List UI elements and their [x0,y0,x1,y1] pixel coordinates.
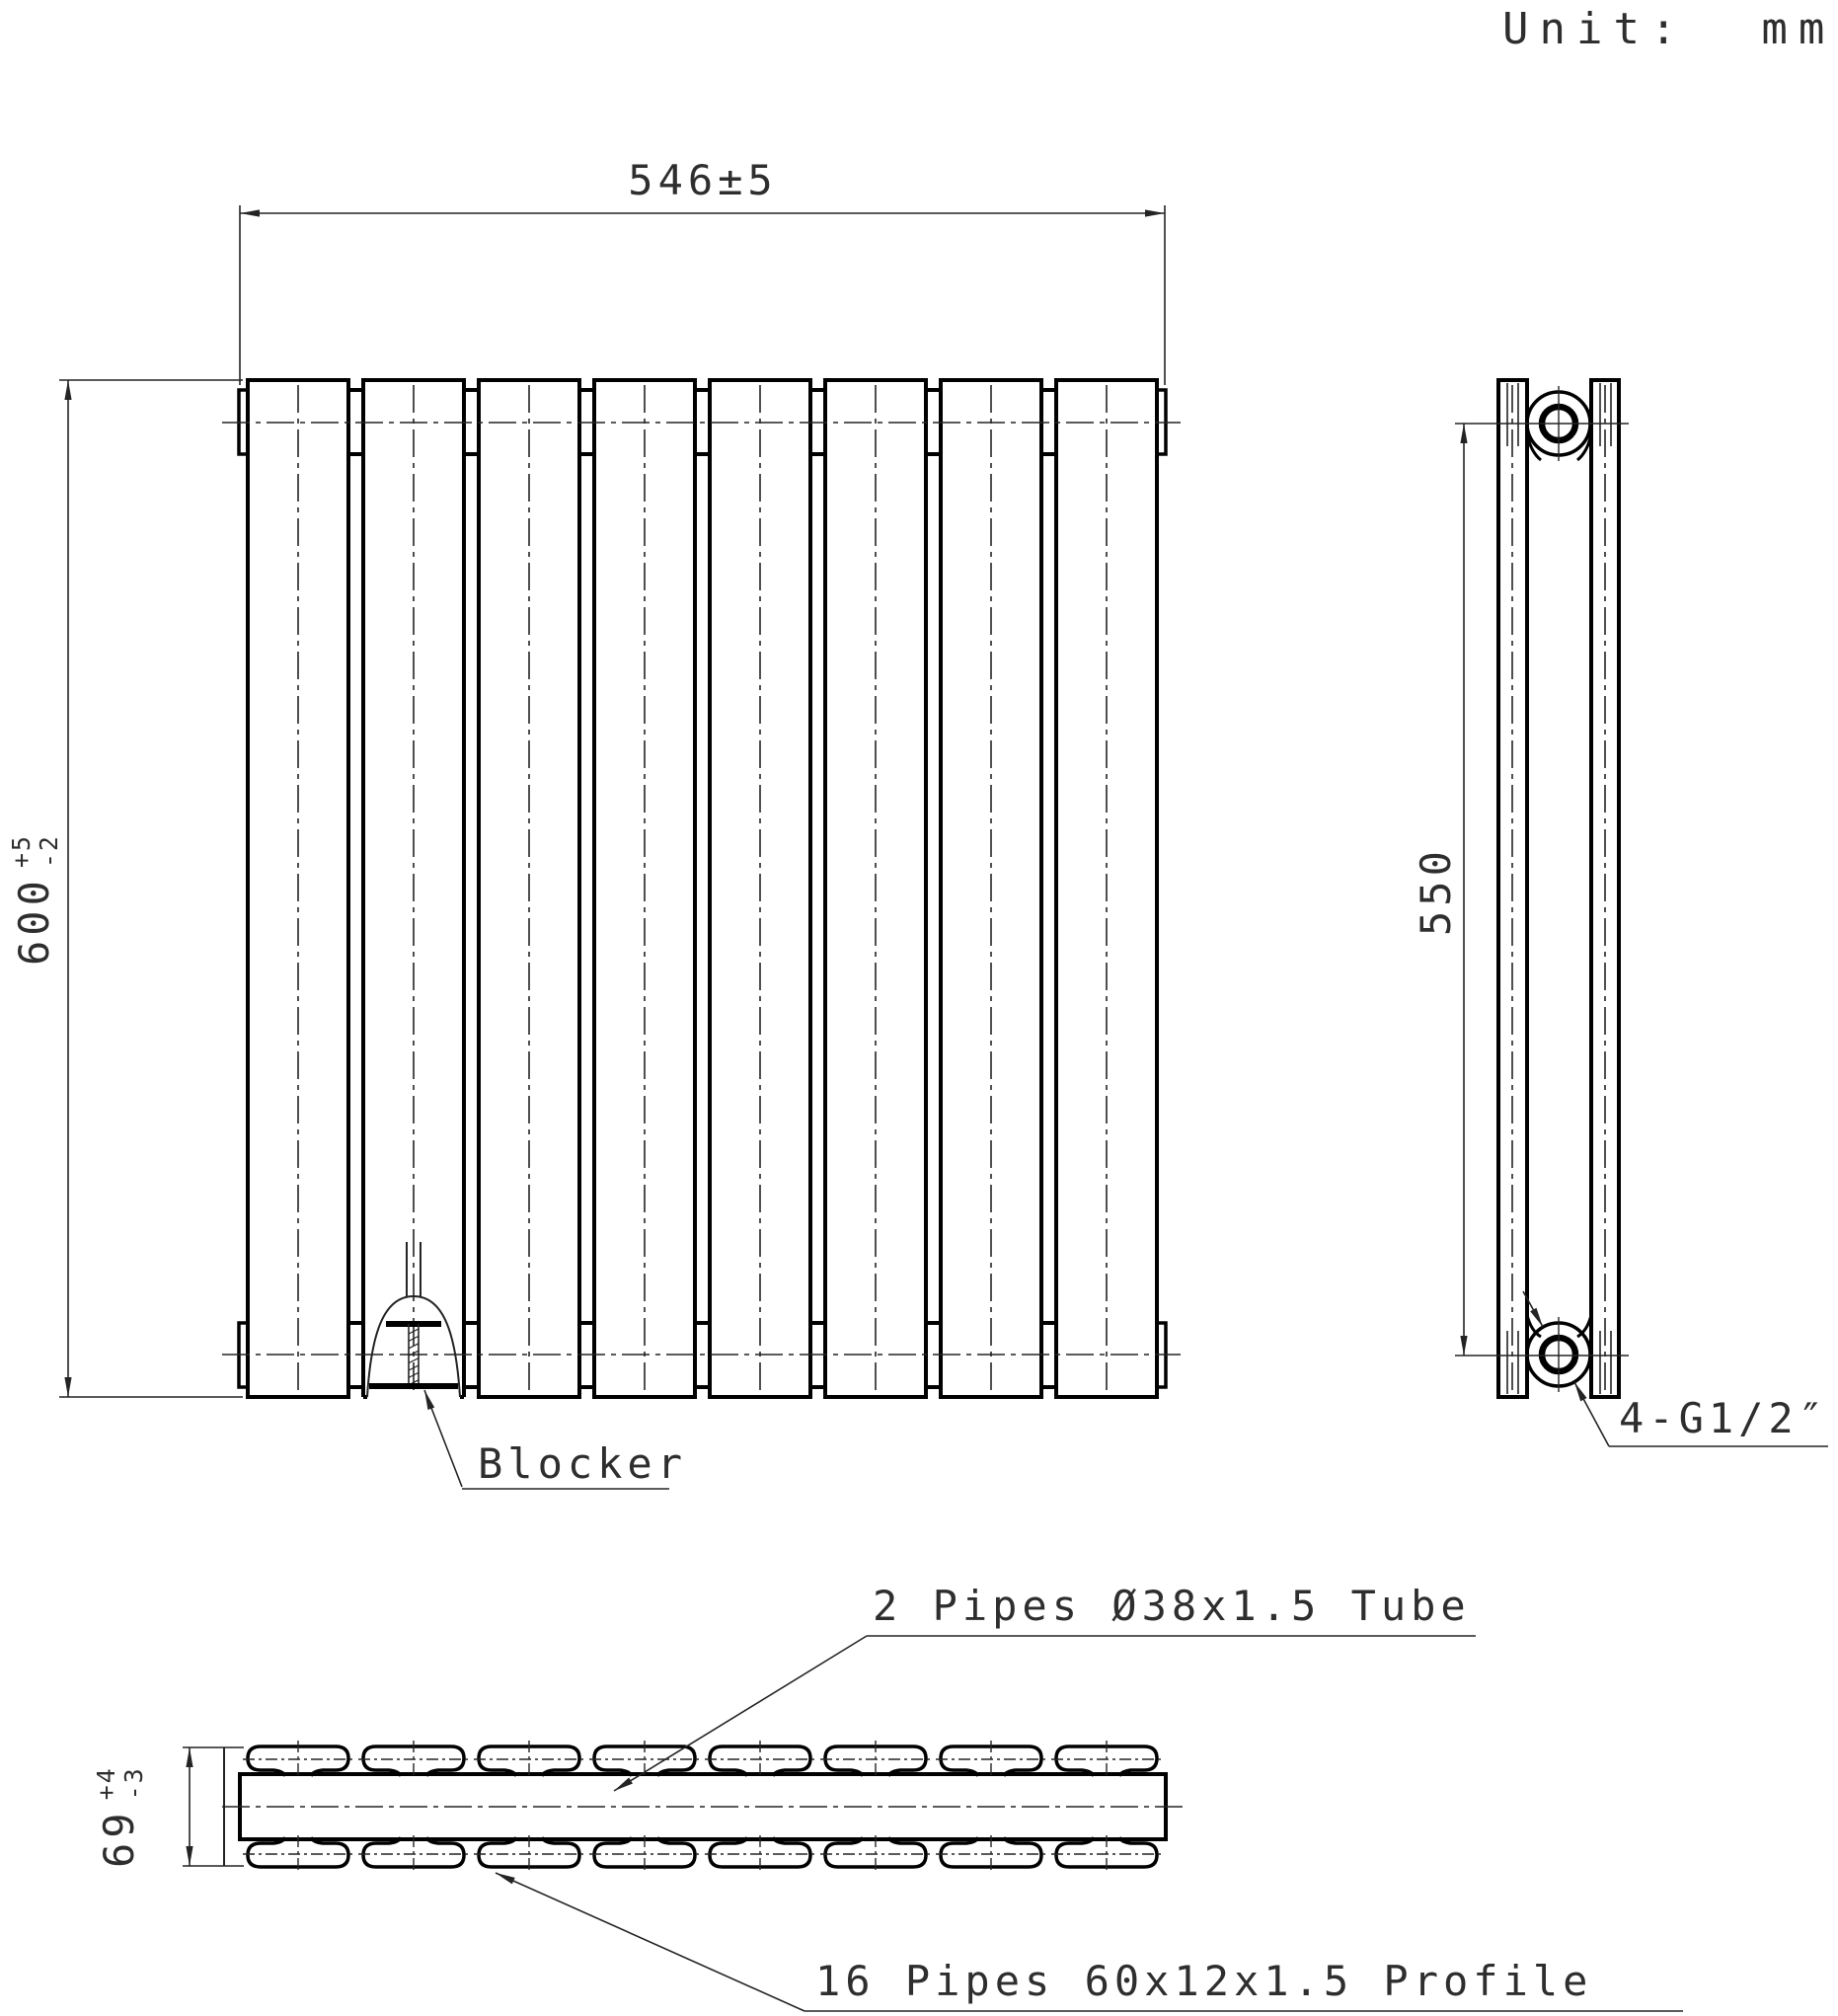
dim-overall-width: 546±5 [628,156,777,204]
profile-label: 16 Pipes 60x12x1.5 Profile [815,1957,1592,2005]
dim-depth: 69+4-3 [95,1766,149,1868]
dim-depth-value: 69 [95,1808,143,1868]
dim-overall-height-value: 600 [10,876,58,966]
unit-note: Unit: mm [1502,4,1835,54]
dim-overall-height-tolerance: +5-2 [8,834,62,868]
blocker-label: Blocker [478,1439,687,1488]
tube-label: 2 Pipes Ø38x1.5 Tube [873,1582,1471,1630]
drawing-sheet: Unit: mm 546±5 600+5-2 550 69+4-3 Blocke… [0,0,1838,2016]
technical-drawing-canvas [0,0,1838,2016]
dim-port-spacing: 550 [1412,846,1460,936]
fittings-label: 4-G1/2″ [1619,1394,1828,1442]
dim-overall-height: 600+5-2 [10,834,64,966]
dim-depth-tolerance: +4-3 [93,1766,147,1800]
